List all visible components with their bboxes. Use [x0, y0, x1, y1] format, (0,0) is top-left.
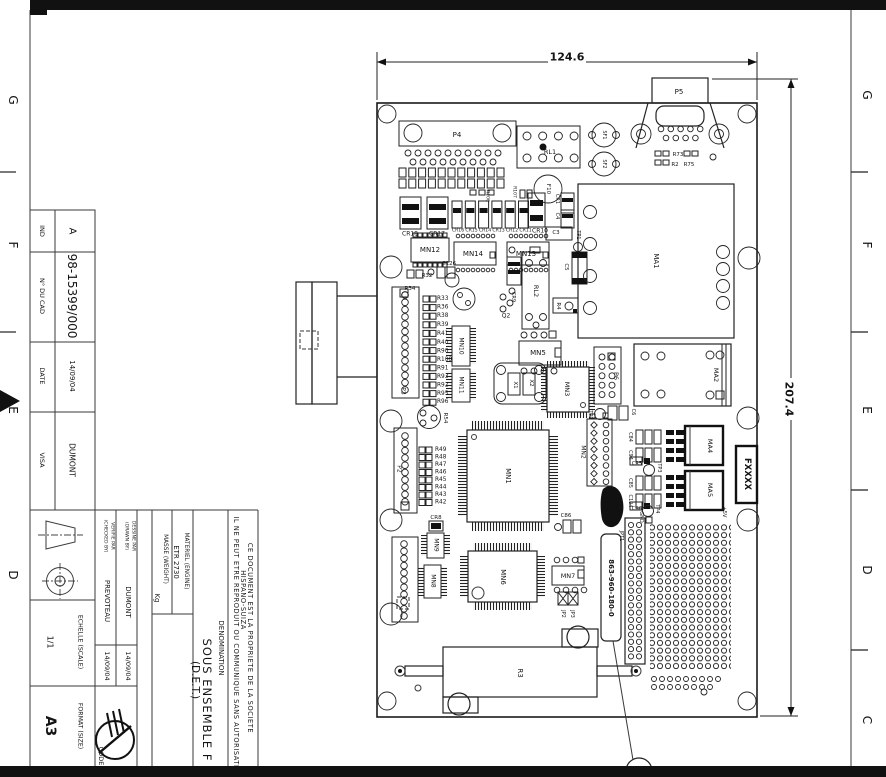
- revision-index: A: [67, 228, 78, 235]
- label-mn14: MN14: [463, 250, 484, 258]
- label-ma5: MA5: [706, 483, 714, 497]
- label-c86: C86: [561, 513, 572, 519]
- label-r32: R32: [422, 273, 433, 279]
- label-r92: R92: [437, 383, 449, 389]
- label-dessine-par: DESSINE PAR: [131, 521, 137, 552]
- label-r3: R3: [516, 668, 524, 677]
- label-denomination: DENOMINATION: [217, 620, 225, 675]
- label-mn6: MN6: [499, 569, 507, 585]
- label-r39: R39: [437, 322, 449, 328]
- label-14-09-04: 14/09/04: [103, 651, 111, 680]
- label-c84: C84: [627, 432, 633, 442]
- denomination: SOUS ENSEMBLE F: [200, 639, 214, 762]
- label-cr14: CR14: [479, 228, 491, 234]
- label-cr11: CR11: [519, 228, 531, 234]
- label-visa: VISA: [38, 452, 46, 468]
- label-mn1: MN1: [504, 468, 512, 484]
- label-x2: X2: [528, 379, 534, 386]
- label-rl2: RL2: [532, 285, 540, 297]
- label-mn12: MN12: [420, 246, 440, 254]
- label-c94: C94: [627, 450, 633, 460]
- label-tp3: TP3: [656, 462, 662, 472]
- label-r48: R48: [435, 455, 447, 461]
- label-kg: Kg: [153, 593, 161, 602]
- label-r107: R107: [512, 186, 518, 198]
- label-format-size-: FORMAT (SIZE): [77, 703, 84, 749]
- label-mn3: MN3: [563, 382, 571, 397]
- label-q2: Q2: [502, 313, 511, 320]
- zone-letter-right-e: E: [860, 406, 874, 414]
- label-r75: R75: [684, 162, 695, 168]
- label-f10: F10: [545, 184, 551, 195]
- label-cr9: CR9: [510, 292, 516, 302]
- label-cr15: CR15: [465, 228, 477, 234]
- label-14-09-04: 14/09/04: [124, 651, 132, 680]
- label-mn10: MN10: [458, 337, 465, 354]
- zone-letter-right-d: D: [860, 565, 874, 574]
- label-jp2: JP2: [560, 609, 566, 618]
- label-p2: P2: [396, 465, 403, 473]
- label-gnd: GND: [638, 511, 644, 523]
- label-r36: R36: [437, 305, 449, 311]
- label-ind: IND: [38, 225, 46, 237]
- label--checked-by-: (CHECKED BY): [103, 520, 109, 553]
- label--5v: +5V: [721, 507, 727, 518]
- label-n-du-cad: N° DU CAD: [38, 278, 46, 314]
- label-p5: P5: [675, 88, 684, 96]
- label-mn11: MN11: [458, 376, 465, 393]
- label-p3: P3: [400, 387, 407, 395]
- label-verifie-par: VERIFIE PAR: [110, 522, 116, 551]
- label-r43: R43: [435, 492, 447, 498]
- zone-letter-left-g: G: [6, 95, 20, 104]
- label-cr5: CR5: [632, 461, 642, 467]
- label-rl1: RL1: [544, 148, 556, 156]
- dim-height: 207.4: [783, 382, 796, 417]
- label-r73: R73: [673, 152, 684, 158]
- drawing-sheet: GFEDGFEDC124.6207.4INDAN° DU CAD98-15399…: [0, 0, 886, 777]
- label--drawn-by-: (DRAWN BY): [124, 522, 130, 550]
- label-r38: R38: [437, 313, 449, 319]
- label-prevoteau: PREVOTEAU: [103, 580, 111, 622]
- label-c126: C126: [442, 261, 457, 267]
- label-r44: R44: [435, 485, 447, 491]
- label-c85: C85: [627, 478, 633, 488]
- label--d-e-t-: (D.E.T.): [189, 661, 201, 699]
- label-r95: R95: [437, 391, 449, 397]
- label-mn7: MN7: [561, 572, 576, 580]
- label-r47: R47: [435, 462, 447, 468]
- label-jpt1: JPT1: [618, 530, 624, 542]
- label-tp4: TP4: [654, 503, 660, 513]
- label-cr8: CR8: [430, 515, 442, 521]
- label-ma4: MA4: [706, 439, 714, 453]
- label-r106: R106: [485, 190, 491, 202]
- label-cr16: CR16: [452, 228, 464, 234]
- label-r45: R45: [435, 477, 447, 483]
- label-cr10: CR10: [532, 228, 548, 235]
- label-c4: C4: [554, 213, 560, 220]
- label-dumont: DUMONT: [124, 586, 132, 618]
- label-cr12: CR12: [506, 228, 518, 234]
- dim-width: 124.6: [550, 51, 585, 64]
- label-mn9: MN9: [433, 538, 440, 552]
- label-14-09-04: 14/09/04: [68, 360, 76, 392]
- label-cr13: CR13: [492, 228, 504, 234]
- scale-value: 1/1: [46, 636, 55, 649]
- label-jp3: JP3: [569, 609, 575, 618]
- zone-letter-right-c: C: [860, 716, 874, 724]
- label-mn5: MN5: [530, 349, 546, 357]
- label-ma2: MA2: [712, 368, 720, 382]
- label-masse-weight-: MASSE (WEIGHT): [162, 534, 168, 584]
- label-r96: R96: [437, 399, 449, 405]
- board-part-number: 863-960-180-0: [607, 559, 615, 617]
- prototype-grid: [650, 523, 731, 670]
- label-r93: R93: [437, 374, 449, 380]
- label-il-ne-peut-etre-reproduit-ou-communique-sans-autorisati: IL NE PEUT ETRE REPRODUIT OU COMMUNIQUE …: [232, 516, 240, 767]
- label-p4: P4: [453, 131, 462, 139]
- zone-letter-right-f: F: [860, 242, 874, 249]
- label-cr18: CR18: [402, 231, 418, 238]
- label-r2: R2: [671, 162, 678, 168]
- label-cr1: CR1: [554, 194, 560, 204]
- label-materiel-engine-: MATERIEL (ENGINE): [183, 533, 189, 590]
- label-c3: C3: [552, 230, 560, 236]
- label-r90: R90: [437, 349, 449, 355]
- label-echelle-scale-: ECHELLE (SCALE): [77, 615, 84, 669]
- marker-blob: [601, 486, 624, 527]
- label-r100: R100: [437, 357, 452, 363]
- label-r40: R40: [437, 340, 449, 346]
- label-r54: R54: [442, 413, 448, 424]
- format-value: A3: [42, 716, 58, 737]
- label-etr-2730: ETR 2730: [172, 545, 180, 579]
- label-mn13: MN13: [516, 250, 536, 258]
- cad-number: 98-15399/000: [65, 254, 79, 339]
- label-mn2: MN2: [580, 445, 587, 459]
- label-x1: X1: [512, 381, 518, 388]
- label-sf1: SF1: [601, 130, 607, 139]
- label-mn8: MN8: [430, 574, 437, 588]
- label-sf2: SF2: [601, 159, 607, 168]
- zone-letter-left-d: D: [6, 570, 20, 579]
- label-r42: R42: [435, 500, 447, 506]
- label-r4: R4: [555, 302, 561, 310]
- label-r34: R34: [405, 286, 416, 292]
- label-r49: R49: [435, 447, 447, 453]
- label-c5: C5: [563, 263, 569, 271]
- label-r46: R46: [435, 470, 447, 476]
- label-code: CODE: [97, 747, 105, 766]
- label-tp1: TP1: [575, 229, 581, 239]
- label-cr17: CR17: [429, 231, 445, 238]
- masked-brand-label: FXXXX: [742, 458, 752, 490]
- label-date: DATE: [38, 368, 46, 385]
- zone-letter-right-g: G: [860, 90, 874, 99]
- zone-letter-left-f: F: [6, 242, 20, 249]
- label-ma1: MA1: [652, 253, 660, 268]
- label-p6: P6: [612, 372, 620, 380]
- label-dumont: DUMONT: [68, 443, 77, 477]
- label-c6: C6: [630, 409, 636, 416]
- label-r33: R33: [437, 296, 449, 302]
- label-tp2: TP2: [587, 409, 593, 419]
- label-r91: R91: [437, 366, 449, 372]
- label-r41: R41: [437, 331, 449, 337]
